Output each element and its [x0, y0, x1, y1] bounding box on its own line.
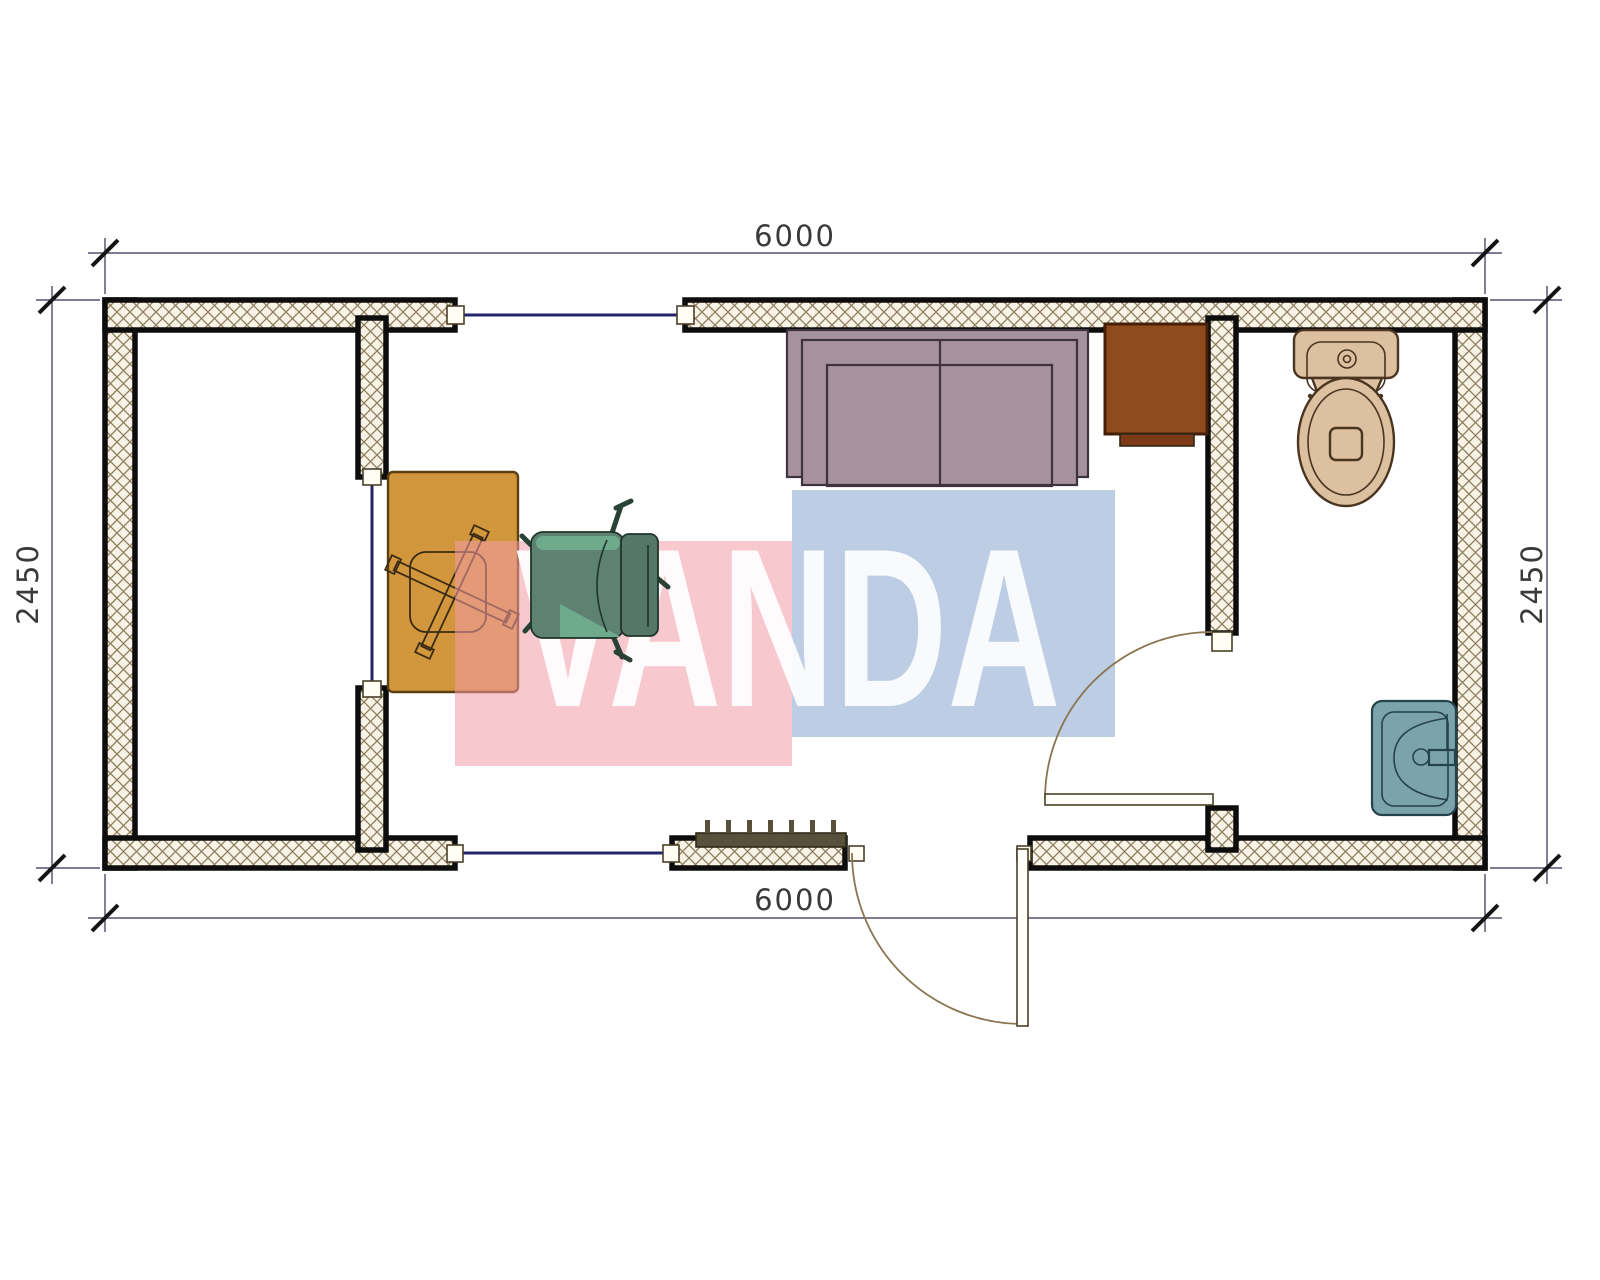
window-jamb-cap: [663, 845, 679, 862]
entrance-door: [852, 849, 1028, 1026]
entrance-door-swing-arc: [852, 853, 1023, 1024]
sofa: [787, 330, 1088, 486]
dim-right-label: 2450: [1515, 543, 1549, 625]
radiator-bar: [696, 833, 846, 847]
sink: [1372, 701, 1456, 815]
dim-top-label: 6000: [754, 219, 836, 253]
bathroom-door-leaf: [1045, 794, 1213, 805]
window-jamb-cap: [447, 306, 464, 324]
toilet-bolt: [1379, 394, 1383, 398]
radiator: [696, 820, 846, 847]
entrance-door-leaf: [1017, 849, 1028, 1026]
radiator-fins: [705, 820, 836, 833]
dim-bottom-label: 6000: [754, 883, 836, 917]
floor-plan-drawing: 6000 6000 2450 2450: [0, 0, 1600, 1280]
chair-backrest: [621, 534, 658, 636]
window-jamb-cap: [447, 845, 463, 862]
wall-top-right-segment: [685, 300, 1485, 330]
window-jamb-cap: [363, 681, 381, 697]
partition-bathroom-stub: [1208, 808, 1236, 850]
window-jamb-cap: [363, 469, 381, 485]
door-jamb-cap: [1212, 632, 1232, 651]
partition-left-room-lower: [358, 688, 386, 850]
partition-left-room-upper: [358, 318, 386, 477]
toilet-bolt: [1308, 394, 1312, 398]
floor-plan-canvas: 6000 6000 2450 2450: [0, 0, 1600, 1280]
toilet: [1294, 330, 1398, 506]
cabinet-top: [1105, 324, 1207, 434]
wall-left: [105, 300, 135, 868]
dim-left-label: 2450: [11, 543, 45, 625]
window-jamb-cap: [677, 306, 694, 324]
wall-right: [1455, 300, 1485, 868]
wall-bottom-left-segment: [105, 838, 455, 868]
cabinet-step: [1120, 434, 1194, 446]
partition-bathroom: [1208, 318, 1236, 633]
wall-bottom-right-segment: [1030, 838, 1485, 868]
wall-top-left-segment: [105, 300, 455, 330]
toilet-tank: [1294, 330, 1398, 378]
cabinet: [1105, 324, 1207, 446]
chair-seat-highlight: [536, 536, 620, 550]
